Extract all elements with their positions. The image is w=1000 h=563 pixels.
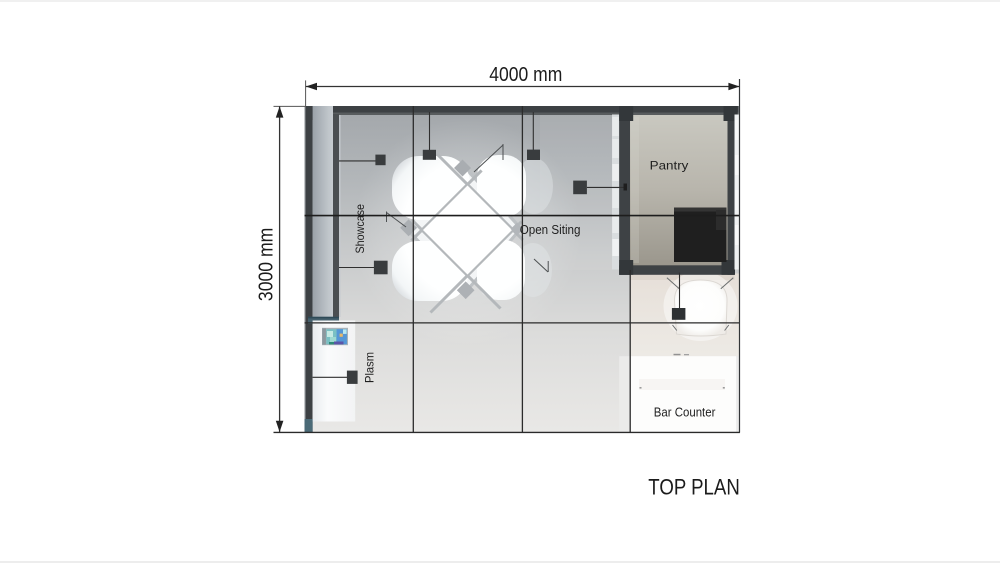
svg-text:Plasm: Plasm	[363, 352, 377, 383]
svg-text:Bar Counter: Bar Counter	[654, 405, 716, 420]
svg-text:Showcase: Showcase	[353, 204, 367, 254]
svg-text:Open Siting: Open Siting	[520, 222, 581, 237]
svg-text:Pantry: Pantry	[650, 159, 689, 173]
svg-text:4000 mm: 4000 mm	[489, 64, 562, 86]
svg-text:3000 mm: 3000 mm	[256, 228, 278, 301]
svg-text:TOP PLAN: TOP PLAN	[648, 474, 740, 499]
